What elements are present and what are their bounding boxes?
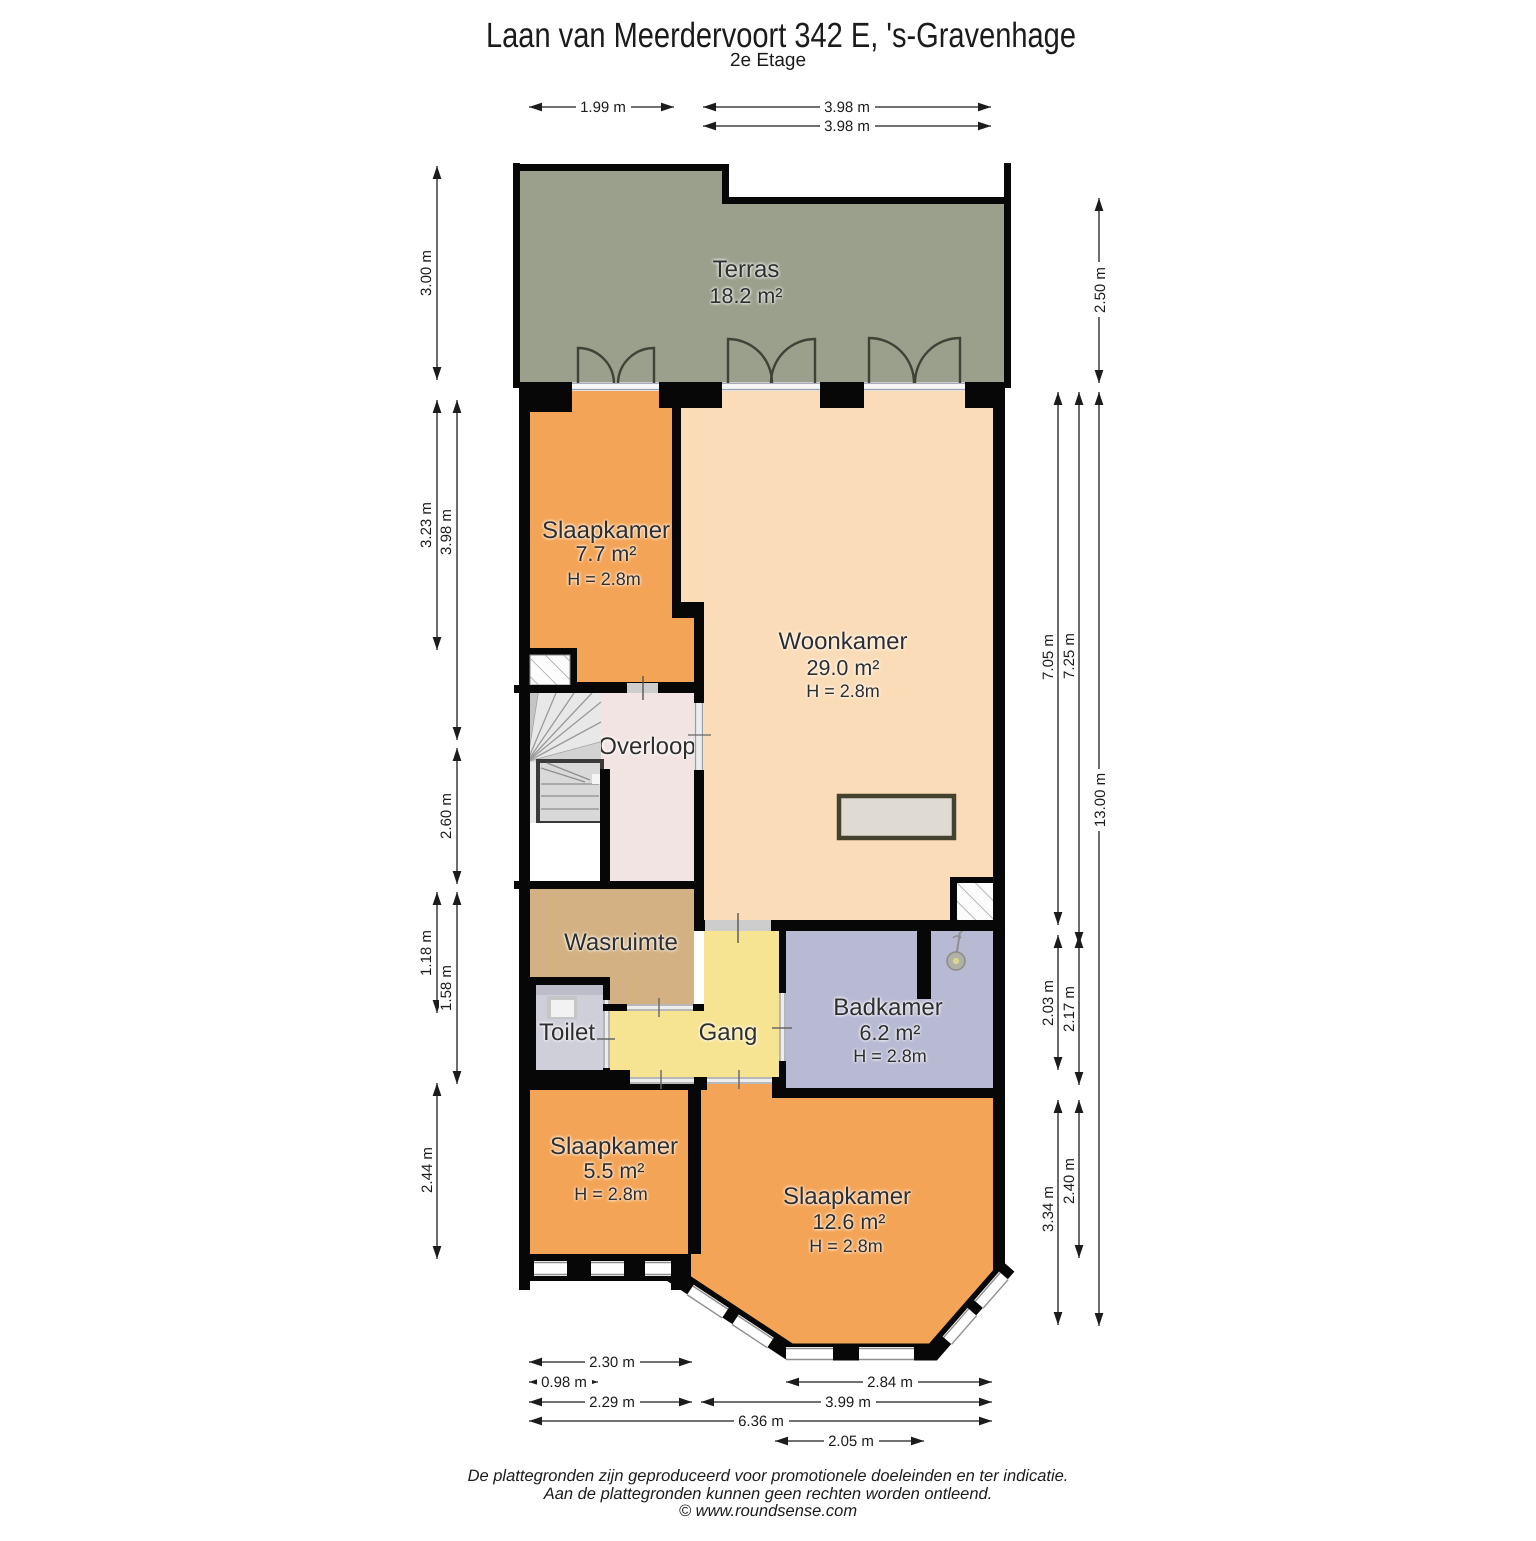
svg-text:13.00 m: 13.00 m bbox=[1092, 773, 1109, 827]
svg-text:De plattegronden zijn geproduc: De plattegronden zijn geproduceerd voor … bbox=[468, 1467, 1069, 1485]
svg-text:3.23 m: 3.23 m bbox=[418, 502, 435, 548]
svg-text:2.05 m: 2.05 m bbox=[828, 1433, 874, 1450]
svg-text:2.29 m: 2.29 m bbox=[589, 1394, 635, 1411]
svg-text:3.00 m: 3.00 m bbox=[418, 250, 435, 296]
svg-text:H = 2.8m: H = 2.8m bbox=[853, 1046, 927, 1066]
svg-text:2.50 m: 2.50 m bbox=[1092, 267, 1109, 313]
svg-text:H = 2.8m: H = 2.8m bbox=[809, 1236, 883, 1256]
svg-text:2.03 m: 2.03 m bbox=[1040, 980, 1057, 1026]
svg-text:1.99 m: 1.99 m bbox=[580, 99, 626, 116]
svg-text:Wasruimte: Wasruimte bbox=[564, 929, 678, 956]
svg-text:Slaapkamer: Slaapkamer bbox=[550, 1133, 678, 1160]
svg-text:3.98 m: 3.98 m bbox=[824, 118, 870, 135]
svg-text:H = 2.8m: H = 2.8m bbox=[574, 1184, 648, 1204]
svg-text:6.2 m²: 6.2 m² bbox=[860, 1021, 921, 1045]
svg-text:2.60 m: 2.60 m bbox=[438, 793, 455, 839]
svg-text:7.25 m: 7.25 m bbox=[1061, 633, 1078, 679]
svg-text:Overloop: Overloop bbox=[598, 733, 695, 760]
svg-text:© www.roundsense.com: © www.roundsense.com bbox=[679, 1502, 857, 1520]
svg-text:7.05 m: 7.05 m bbox=[1040, 634, 1057, 680]
svg-text:6.36 m: 6.36 m bbox=[738, 1413, 784, 1430]
svg-text:H = 2.8m: H = 2.8m bbox=[806, 681, 880, 701]
svg-text:2e Etage: 2e Etage bbox=[730, 50, 806, 71]
svg-text:Toilet: Toilet bbox=[539, 1019, 595, 1046]
svg-text:3.98 m: 3.98 m bbox=[438, 509, 455, 555]
svg-text:29.0 m²: 29.0 m² bbox=[807, 656, 880, 680]
svg-text:2.40 m: 2.40 m bbox=[1061, 1158, 1078, 1204]
svg-text:5.5 m²: 5.5 m² bbox=[584, 1159, 645, 1183]
svg-text:7.7 m²: 7.7 m² bbox=[576, 542, 637, 566]
svg-text:3.98 m: 3.98 m bbox=[824, 99, 870, 116]
svg-text:3.99 m: 3.99 m bbox=[825, 1394, 871, 1411]
svg-text:1.58 m: 1.58 m bbox=[438, 965, 455, 1011]
svg-text:12.6 m²: 12.6 m² bbox=[813, 1210, 886, 1234]
svg-text:2.84 m: 2.84 m bbox=[867, 1374, 913, 1391]
svg-text:Aan de plattegronden kunnen ge: Aan de plattegronden kunnen geen rechten… bbox=[543, 1485, 993, 1503]
svg-text:Gang: Gang bbox=[699, 1019, 758, 1046]
svg-text:0.98 m: 0.98 m bbox=[541, 1374, 587, 1391]
svg-text:2.17 m: 2.17 m bbox=[1061, 986, 1078, 1032]
svg-text:2.30 m: 2.30 m bbox=[589, 1354, 635, 1371]
svg-text:Slaapkamer: Slaapkamer bbox=[783, 1183, 911, 1210]
svg-text:Woonkamer: Woonkamer bbox=[779, 628, 908, 655]
svg-text:Terras: Terras bbox=[713, 256, 780, 283]
svg-text:Slaapkamer: Slaapkamer bbox=[542, 517, 670, 544]
svg-text:H = 2.8m: H = 2.8m bbox=[567, 569, 641, 589]
svg-text:18.2 m²: 18.2 m² bbox=[710, 284, 783, 308]
svg-text:2.44 m: 2.44 m bbox=[419, 1147, 436, 1193]
svg-text:1.18 m: 1.18 m bbox=[418, 930, 435, 976]
svg-text:3.34 m: 3.34 m bbox=[1040, 1186, 1057, 1232]
